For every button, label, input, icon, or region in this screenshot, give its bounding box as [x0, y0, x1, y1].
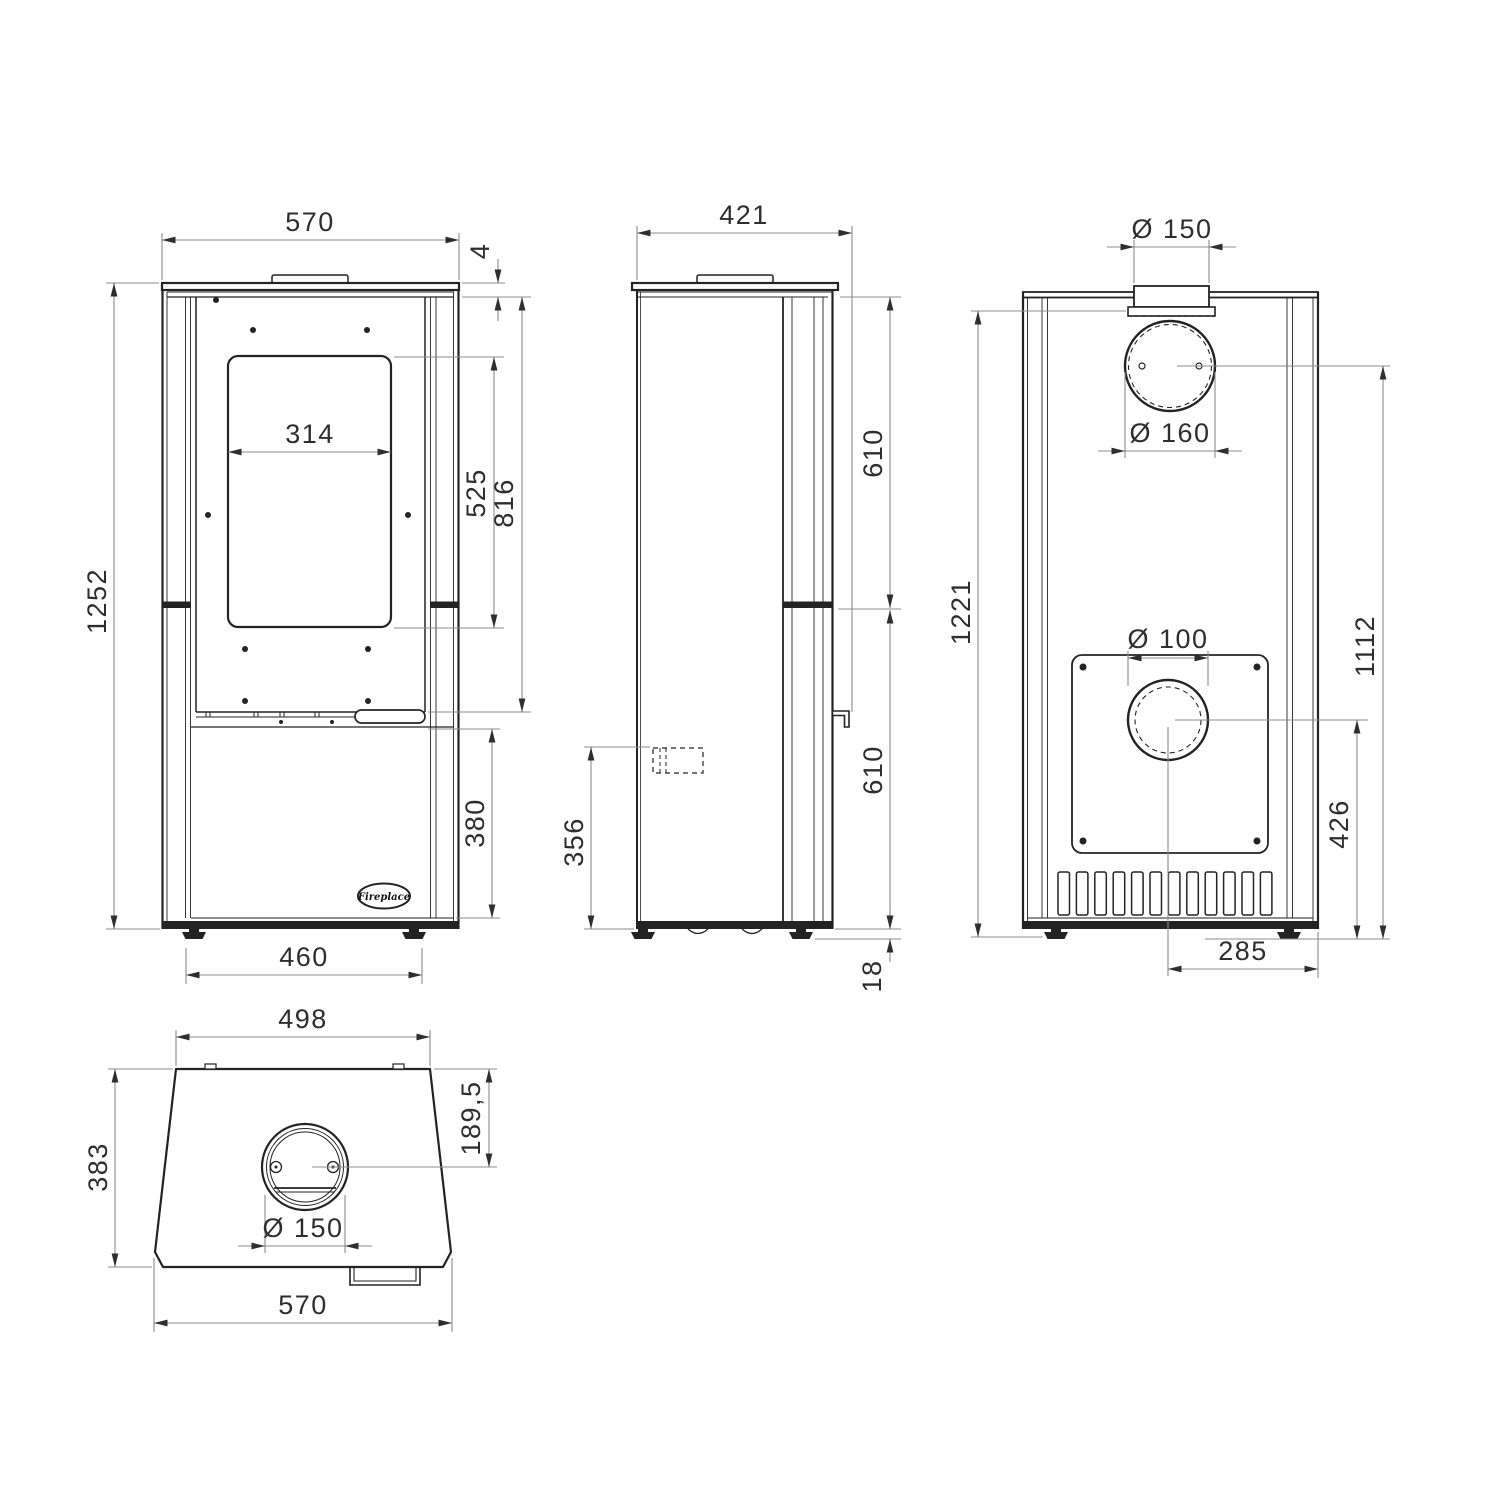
dim-lower-body-height: 610: [858, 745, 888, 795]
flue-collar: [1134, 286, 1209, 307]
dim-flue-center-height: 1112: [1350, 615, 1380, 677]
dim-front-height: 1252: [82, 568, 112, 634]
front-left-foot: [182, 929, 206, 939]
rear-right-foot: [1277, 929, 1301, 939]
dim-depth: 421: [719, 200, 769, 230]
dim-rear-body-height: 1221: [946, 579, 976, 645]
front-view: Fireplace 570 4 1252 314 525 816 380: [82, 207, 531, 984]
dim-door-bottom-height: 816: [489, 478, 519, 528]
door-handle-slot: [355, 710, 425, 723]
dim-glass-height: 525: [461, 468, 491, 518]
dim-drawer-height: 380: [460, 798, 490, 848]
rear-view-outline: [1023, 286, 1318, 939]
rear-view: Ø 150 Ø 160 1221 Ø 100 1112 426 285: [946, 214, 1390, 978]
rear-left-foot: [1044, 929, 1068, 939]
side-front-foot: [631, 929, 655, 939]
side-view: 421 610 610 356 18: [559, 200, 901, 993]
dim-top-body-width: 498: [278, 1004, 328, 1034]
dim-glass-width: 314: [285, 419, 335, 449]
brand-logo-text: Fireplace: [357, 892, 410, 903]
dim-upper-body-height: 610: [858, 428, 888, 478]
top-handle-tab: [350, 1267, 420, 1285]
brand-logo: Fireplace: [357, 884, 410, 909]
dim-feet-spacing: 460: [279, 942, 329, 972]
dim-flue-center-offset: 189,5: [456, 1080, 486, 1155]
dim-flue-collar-diameter: Ø 150: [1131, 214, 1212, 244]
rear-vent-slots: [1058, 872, 1272, 915]
top-view-outline: [155, 1064, 451, 1285]
technical-drawing-page: Fireplace 570 4 1252 314 525 816 380: [0, 0, 1500, 1500]
side-handle-hook: [833, 711, 850, 727]
side-dimensions: 421 610 610 356 18: [559, 200, 901, 993]
side-view-outline: [631, 275, 849, 939]
dim-air-inlet-center-height: 426: [1324, 799, 1354, 849]
dim-inlet-height: 356: [559, 817, 589, 867]
dim-air-inlet-diameter: Ø 100: [1127, 624, 1208, 654]
side-rear-foot: [789, 929, 813, 939]
dim-top-depth: 383: [83, 1142, 113, 1192]
dim-air-inlet-offset: 285: [1218, 936, 1268, 966]
door-glass-window: [228, 356, 391, 627]
top-view: 498 383 189,5 Ø 150 570: [83, 1004, 497, 1332]
dim-foot-height: 18: [857, 959, 887, 992]
dim-flue-opening-diameter: Ø 160: [1129, 418, 1210, 448]
stove-dimension-drawing: Fireplace 570 4 1252 314 525 816 380: [0, 0, 1500, 1500]
dim-top-plate: 4: [465, 243, 495, 260]
dim-top-overall-width: 570: [278, 1290, 328, 1320]
dim-front-width: 570: [285, 207, 335, 237]
front-right-foot: [402, 929, 426, 939]
dim-top-flue-diameter: Ø 150: [262, 1213, 343, 1243]
